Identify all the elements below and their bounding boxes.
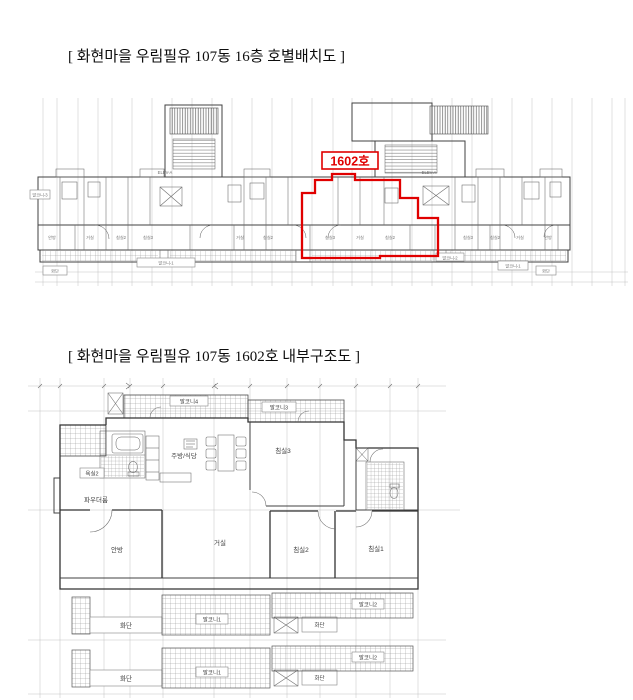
balcony1-label: 발코니-1 <box>158 260 174 267</box>
flower-bed-label: 화단 <box>120 674 132 683</box>
balcony2-label: 발코니-2 <box>442 255 458 262</box>
room-label-balcony4: 발코니4 <box>180 398 198 406</box>
room-label: 거실 <box>356 234 364 241</box>
room-label-bed2: 침실2 <box>293 545 309 554</box>
room-label: 침실2 <box>263 234 274 240</box>
balcony1-label: 발코니-1 <box>505 263 521 270</box>
dining-table <box>218 435 234 471</box>
flower-bed-label: 화단 <box>120 621 132 630</box>
flower-bed-label: 화단 <box>51 268 59 275</box>
unit-1602-outline <box>302 174 438 258</box>
building-floor-plan-figure: 화단 발코니-1 발코니-2 발코니-1 화단 발코니-3 ELEV-A ELE… <box>0 95 633 290</box>
unit-1602-floor-plan-figure: 발코니4 발코니3 욕실2 파우더룸 <box>0 378 633 700</box>
flower-bed-label: 화단 <box>314 674 324 682</box>
room-label-living: 거실 <box>214 538 226 547</box>
kitchen-counter <box>146 436 159 480</box>
room-label-balcony1: 발코니1 <box>203 669 221 677</box>
flower-bed-label: 화단 <box>542 268 550 275</box>
kitchen-island <box>160 473 191 482</box>
dining-chairs <box>206 437 246 470</box>
elevator-label: ELEV-A <box>422 170 437 175</box>
flower-bed-label: 화단 <box>314 621 324 629</box>
elevator-label: ELEV-A <box>158 170 173 175</box>
room-label-kitchen: 주방/식당 <box>171 451 197 460</box>
unit-1602-label: 1602호 <box>330 155 370 169</box>
balcony3-label: 발코니-3 <box>32 192 48 199</box>
room-label-master: 안방 <box>111 545 123 554</box>
document-page: [ 화현마을 우림필유 107동 16층 호별배치도 ] <box>0 0 633 700</box>
page-title-site-plan: [ 화현마을 우림필유 107동 16층 호별배치도 ] <box>68 45 345 66</box>
bathroom1 <box>356 448 404 510</box>
room-label: 거실 <box>236 234 244 241</box>
room-label-bath2: 욕실2 <box>85 470 98 478</box>
unit-partitions <box>60 177 558 250</box>
room-label-balcony3: 발코니3 <box>270 404 288 412</box>
balcony-strip-row2: 화단 발코니1 화단 발코니2 <box>72 646 413 688</box>
room-label: 침실3 <box>325 234 336 240</box>
room-label-balcony2: 발코니2 <box>359 654 377 662</box>
room-label-bed3: 침실3 <box>275 446 291 455</box>
balcony-strip <box>42 250 566 262</box>
balcony-strip-row1: 화단 발코니1 화단 발코니2 <box>72 593 413 635</box>
room-label-balcony2: 발코니2 <box>359 601 377 609</box>
unit-room-labels: 안방 거실 침실2 침실3 거실 침실2 침실3 거실 침실2 침실3 침실2 … <box>48 234 552 241</box>
room-label: 침실2 <box>490 234 501 240</box>
room-label: 안방 <box>544 234 552 240</box>
room-label: 침실3 <box>143 234 154 240</box>
room-label-powder: 파우더룸 <box>84 495 108 504</box>
stair-core-left <box>160 105 222 206</box>
room-label: 안방 <box>48 234 56 240</box>
kitchen-dining: 주방/식당 <box>146 435 246 482</box>
room-label: 침실3 <box>463 234 474 240</box>
room-label: 침실2 <box>385 234 396 240</box>
room-label-balcony1: 발코니1 <box>203 616 221 624</box>
room-label: 거실 <box>86 234 94 241</box>
room-label-bed1: 침실1 <box>368 544 384 553</box>
room-label: 거실 <box>516 234 524 241</box>
room-label: 침실2 <box>116 234 127 240</box>
page-title-unit-plan: [ 화현마을 우림필유 107동 1602호 내부구조도 ] <box>68 345 360 366</box>
